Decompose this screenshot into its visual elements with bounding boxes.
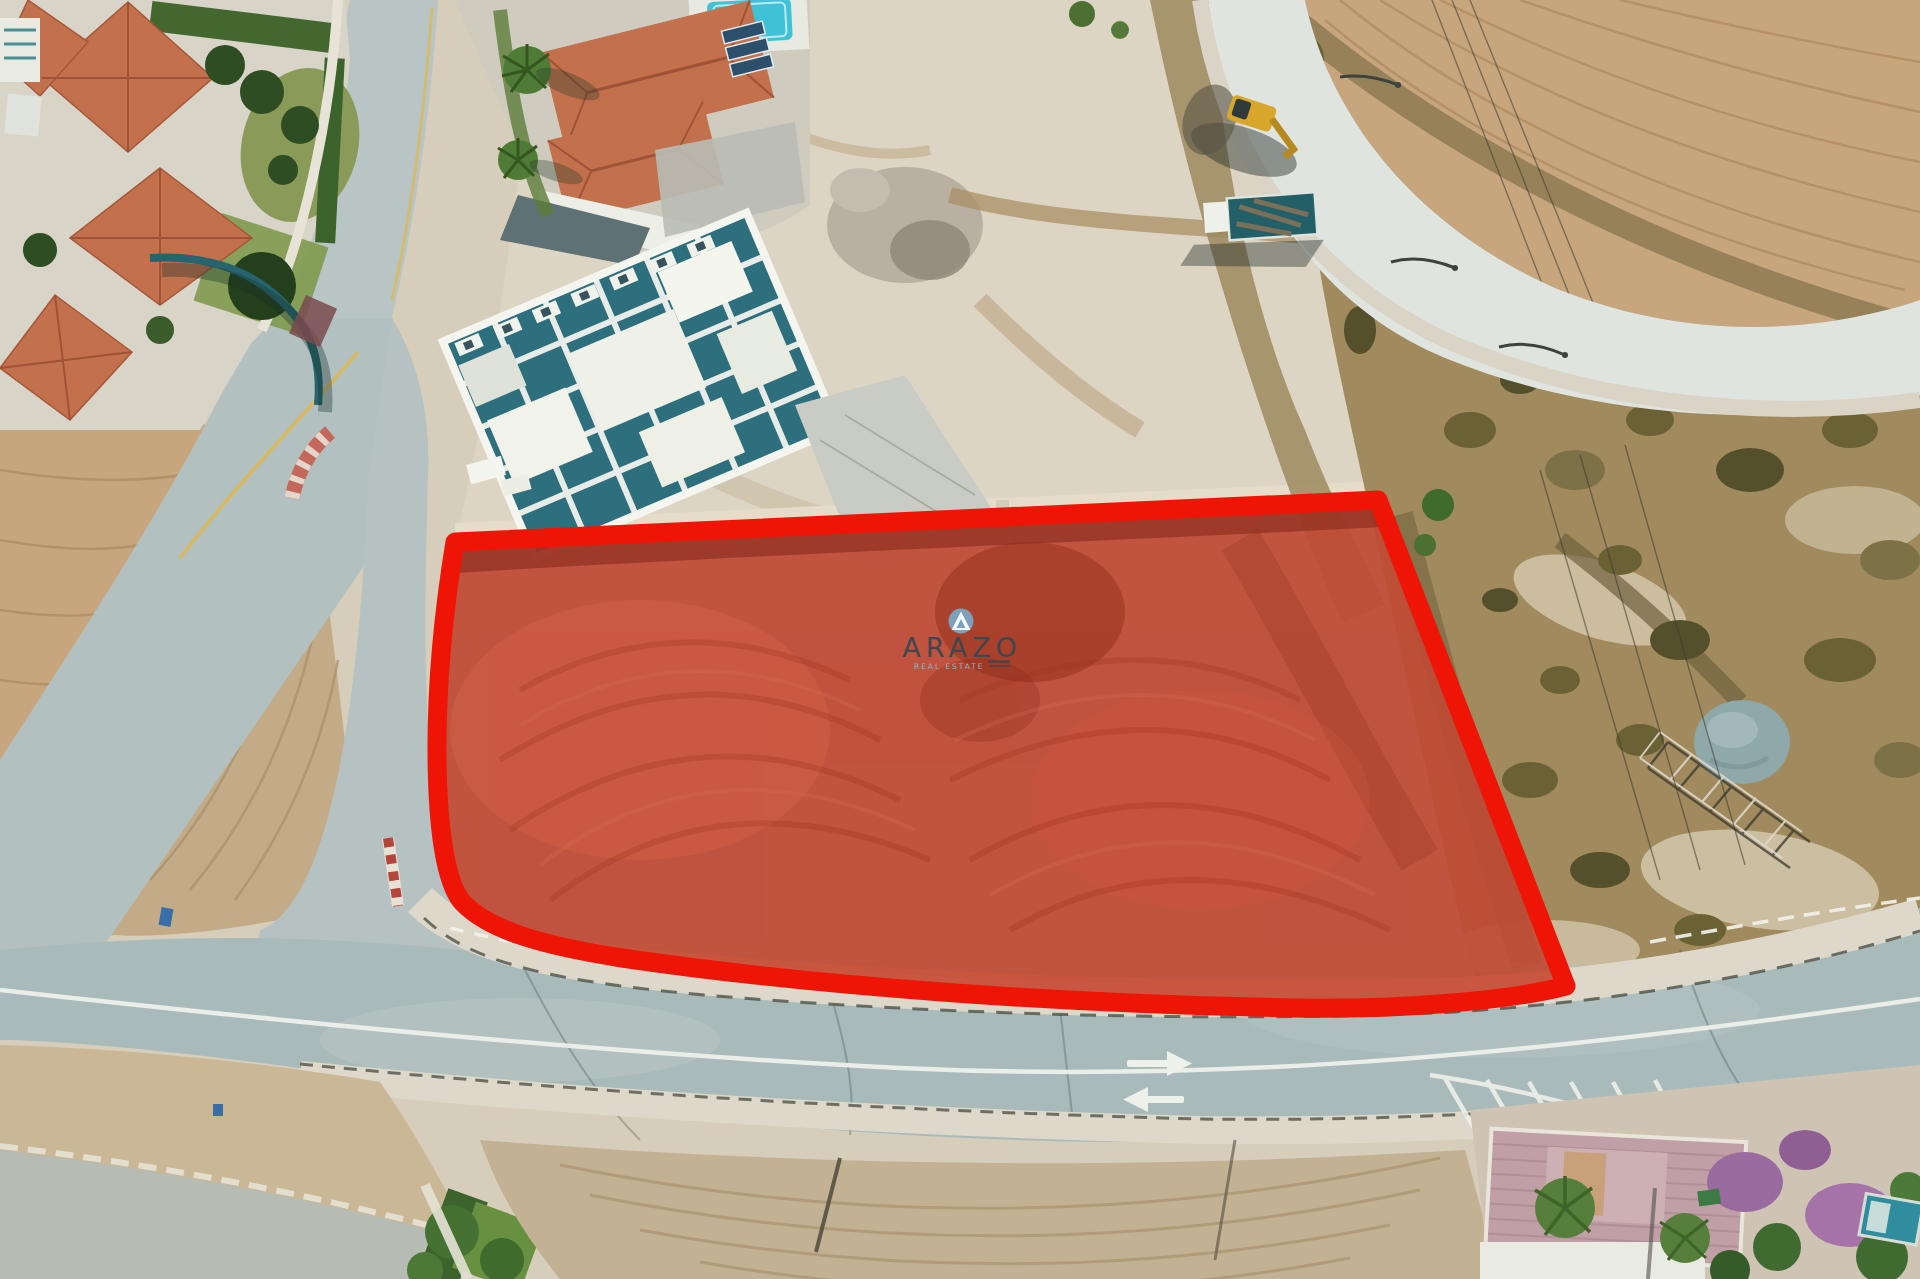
villa-top-left	[0, 0, 375, 430]
outbuilding	[0, 18, 40, 82]
green-bin	[1697, 1189, 1721, 1207]
street-light	[1562, 352, 1568, 358]
street-light	[1395, 82, 1401, 88]
teal-awning	[1859, 1193, 1920, 1244]
arazo-tagline: REAL ESTATE	[914, 662, 985, 671]
street-light	[1452, 265, 1458, 271]
aerial-photo: ARAZO REAL ESTATE	[0, 0, 1920, 1279]
truck-cab	[1203, 201, 1229, 233]
aerial-photo-canvas: ARAZO REAL ESTATE	[0, 0, 1920, 1279]
red-plot-overlay	[437, 500, 1566, 1008]
arazo-wordmark: ARAZO	[902, 632, 1021, 663]
palm-tree	[1660, 1213, 1710, 1263]
